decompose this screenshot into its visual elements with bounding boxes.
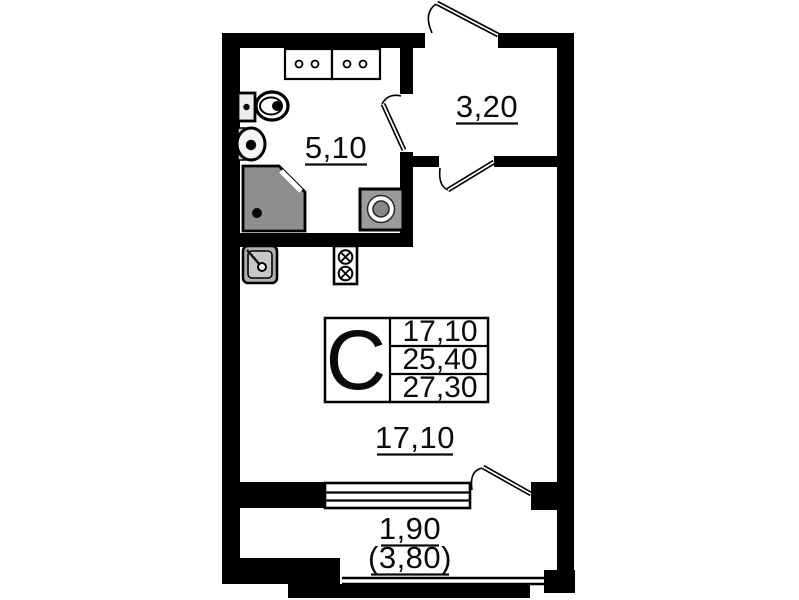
shower-cabin: [243, 166, 305, 231]
bathroom-door-leaf-inner: [383, 104, 404, 150]
entry-door-leaf-inner: [437, 3, 498, 35]
entry-door-arc: [428, 4, 436, 33]
apartment-type-letter: С: [326, 313, 387, 407]
cabinet-knob-icon: [360, 61, 367, 68]
entry-door: [428, 3, 498, 35]
living-room-window: [325, 483, 470, 508]
room-door-arc: [440, 168, 448, 190]
window-frame: [325, 483, 470, 508]
table-value-total: 27,30: [402, 371, 477, 404]
toilet-tank-button: [243, 104, 249, 110]
living-room-area-label: 17,10: [375, 420, 455, 455]
wall-bottom-right-stub: [544, 570, 575, 593]
wash-basin: [237, 128, 265, 160]
room-door: [440, 162, 494, 190]
bathroom-area-label: 5,10: [305, 130, 367, 165]
faucet-knob-icon: [258, 263, 266, 271]
cabinet-knob-icon: [344, 61, 351, 68]
cabinet-knob-icon: [312, 61, 319, 68]
toilet: [238, 92, 288, 121]
wall-hall-bottom-left-stub: [413, 156, 439, 167]
balcony-door-arc: [471, 468, 482, 490]
balcony-total-area-label: (3,80): [368, 540, 452, 575]
cabinet-left: [285, 49, 332, 79]
vanity-cabinets: [285, 49, 380, 79]
wall-hall-bottom-right: [494, 156, 557, 167]
area-info-table: С 17,10 25,40 27,30: [325, 313, 488, 407]
floor-plan-canvas: С 17,10 25,40 27,30 5,10 3,20 17,10 1,90…: [0, 0, 799, 600]
wall-balcony-door-stub: [531, 482, 557, 510]
basin-drain: [246, 140, 256, 150]
hallway-area-label: 3,20: [456, 89, 518, 124]
room-door-leaf-inner: [448, 162, 494, 190]
cabinet-right: [332, 49, 380, 79]
balcony-door-leaf-inner: [483, 467, 531, 494]
kitchen-sink: [243, 246, 277, 283]
balcony-window: [342, 578, 545, 584]
bathroom-door: [382, 95, 404, 150]
washing-machine: [360, 189, 403, 230]
wall-right: [557, 33, 574, 593]
washing-machine-drum: [373, 201, 389, 217]
wall-balcony-left: [222, 482, 325, 508]
bathroom-door-arc: [382, 95, 401, 104]
wall-top-left: [222, 33, 425, 48]
floor-plan-page: С 17,10 25,40 27,30 5,10 3,20 17,10 1,90…: [0, 0, 799, 600]
cabinet-knob-icon: [296, 61, 303, 68]
wall-bathroom-hall-upper: [400, 48, 413, 94]
stove: [334, 246, 357, 284]
wall-bottom-slab: [288, 584, 530, 598]
wall-bottom-left: [222, 558, 340, 584]
shower-drain: [252, 208, 262, 218]
toilet-drain: [272, 101, 282, 111]
balcony-door: [471, 467, 531, 494]
shower-tray: [243, 166, 305, 231]
